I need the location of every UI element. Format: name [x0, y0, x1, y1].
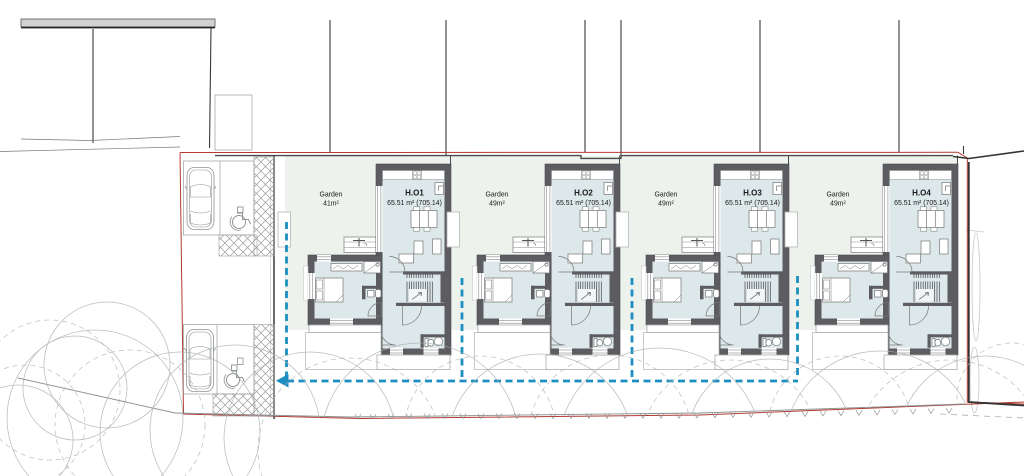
svg-text:H.O3: H.O3	[743, 189, 762, 198]
svg-text:H.O4: H.O4	[912, 189, 931, 198]
svg-text:49m²: 49m²	[830, 201, 846, 208]
svg-text:49m²: 49m²	[658, 201, 674, 208]
svg-text:49m²: 49m²	[489, 201, 505, 208]
svg-text:Garden: Garden	[827, 192, 850, 199]
svg-text:65.51 m² (705.14): 65.51 m² (705.14)	[894, 200, 949, 207]
svg-text:65.51 m² (705.14): 65.51 m² (705.14)	[725, 200, 780, 207]
svg-text:65.51 m² (705.14): 65.51 m² (705.14)	[387, 200, 442, 207]
svg-text:65.51 m² (705.14): 65.51 m² (705.14)	[556, 200, 611, 207]
svg-text:H.O1: H.O1	[405, 189, 424, 198]
svg-text:Garden: Garden	[486, 192, 509, 199]
svg-text:Garden: Garden	[320, 192, 343, 199]
svg-text:41m²: 41m²	[323, 201, 339, 208]
svg-text:Garden: Garden	[655, 192, 678, 199]
svg-text:H.O2: H.O2	[574, 189, 593, 198]
